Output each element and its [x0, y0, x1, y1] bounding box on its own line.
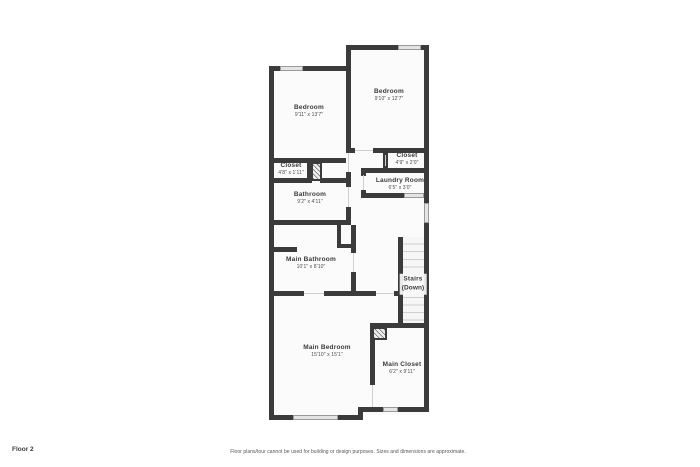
floor-plan: Bedroom 9'11" x 13'7" Bedroom 9'10" x 12…	[0, 0, 700, 467]
window	[293, 415, 338, 420]
door-opening	[363, 175, 364, 190]
room-label-bedroom-right: Bedroom 9'10" x 12'7"	[374, 87, 404, 103]
wall	[324, 291, 376, 296]
wall	[269, 247, 297, 252]
room-label-main-closet: Main Closet 6'2" x 9'11"	[383, 360, 422, 376]
room-label-closet-left: Closet 4'8" x 1'11"	[278, 161, 303, 177]
wall	[346, 45, 351, 153]
room-label-stairs: Stairs (Down)	[400, 274, 427, 295]
room-label-main-bedroom: Main Bedroom 15'10" x 15'1"	[303, 343, 351, 359]
door-opening	[385, 155, 386, 166]
window	[383, 407, 398, 412]
door-opening	[353, 253, 354, 272]
window	[404, 193, 424, 198]
door-panel-hatch	[311, 162, 322, 181]
wall	[269, 291, 304, 296]
window	[424, 203, 429, 223]
window	[280, 66, 303, 71]
wall	[320, 178, 346, 183]
door-opening	[304, 293, 324, 294]
door-opening	[348, 153, 349, 172]
door-panel-hatch	[372, 327, 387, 340]
room-label-laundry: Laundry Room 6'5" x 3'0"	[376, 176, 424, 192]
wall	[424, 45, 429, 412]
wall	[337, 244, 356, 248]
room-label-closet-right: Closet 4'9" x 2'0"	[396, 151, 419, 167]
wall	[269, 66, 274, 420]
wall	[346, 172, 351, 187]
window	[398, 45, 421, 50]
door-opening	[376, 293, 394, 294]
room-label-bedroom-left: Bedroom 9'11" x 13'7"	[294, 103, 324, 119]
disclaimer-text: Floor plans/tour cannot be used for buil…	[230, 449, 466, 455]
room-label-bathroom: Bathroom 9'2" x 4'11"	[294, 190, 326, 206]
room-label-main-bathroom: Main Bathroom 10'1" x 8'10"	[286, 255, 336, 271]
floor-label: Floor 2	[12, 446, 34, 453]
door-opening	[355, 150, 373, 151]
door-opening	[348, 187, 349, 207]
wall	[269, 178, 309, 183]
wall	[361, 168, 428, 173]
wall	[351, 225, 356, 253]
wall	[337, 225, 341, 244]
door-opening	[372, 385, 373, 407]
